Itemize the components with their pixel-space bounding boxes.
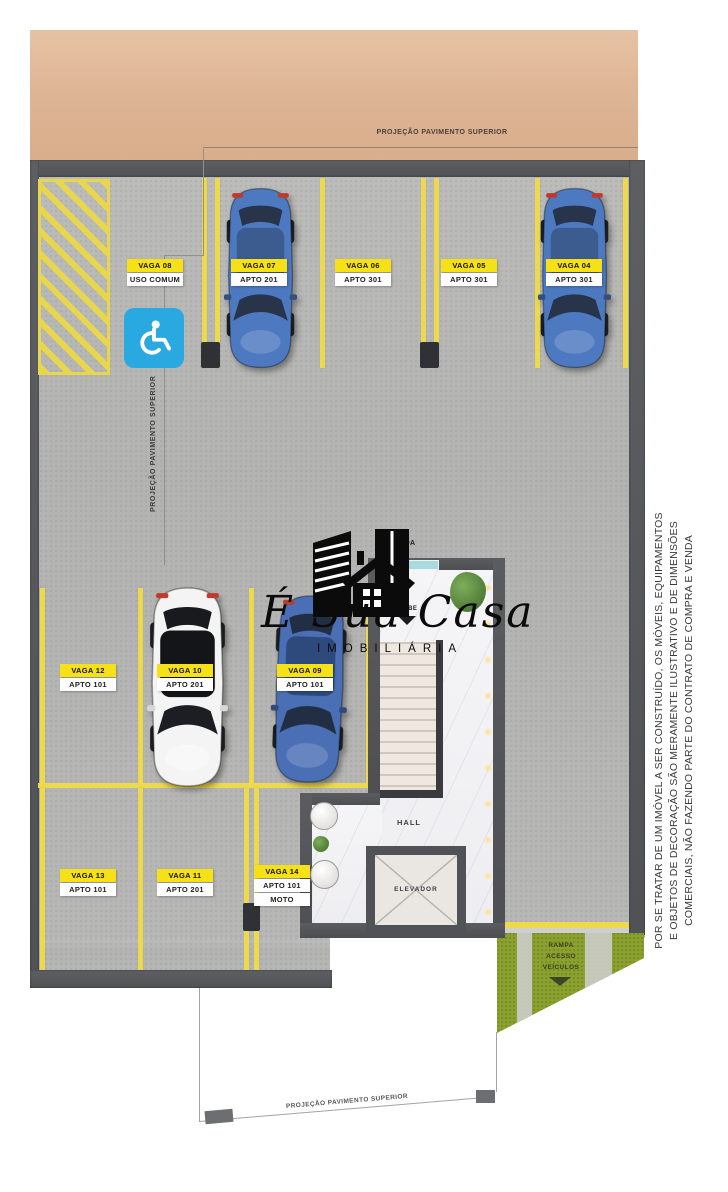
- stall-label-vaga-07: VAGA 07 APTO 201: [231, 259, 287, 286]
- unit-label: APTO 101: [254, 879, 310, 892]
- unit-label: APTO 101: [60, 883, 116, 896]
- stall-line: [40, 588, 45, 786]
- vaga-number: VAGA 10: [157, 664, 213, 677]
- projection-line: [199, 988, 200, 1122]
- disclaimer-line3: COMERCIAIS, NÃO FAZENDO PARTE DO CONTRAT…: [682, 483, 697, 978]
- upper-sidewalk-area: [30, 30, 638, 160]
- hall-wall-top: [300, 793, 380, 805]
- stall-label-vaga-04: VAGA 04 APTO 301: [546, 259, 602, 286]
- stall-label-vaga-09: VAGA 09 APTO 101: [277, 664, 333, 691]
- stall-line: [421, 178, 426, 368]
- vaga-number: VAGA 09: [277, 664, 333, 677]
- stall-label-vaga-12: VAGA 12 APTO 101: [60, 664, 116, 691]
- ramp-label-line3: VEÍCULOS: [519, 962, 603, 973]
- vehicle-ramp: RAMPA ACESSO VEÍCULOS: [497, 933, 644, 1033]
- disclaimer-line2: E OBJETOS DE DECORAÇÃO SÃO MERAMENTE ILU…: [667, 483, 682, 978]
- wheelchair-icon: [133, 317, 175, 359]
- stall-line: [40, 788, 45, 970]
- ramp-label-line1: RAMPA: [519, 940, 603, 951]
- moto-label: MOTO: [254, 893, 310, 906]
- ramp-arrow-icon: [549, 977, 571, 986]
- projection-line: [164, 255, 204, 256]
- stair-section-cut: [380, 790, 436, 798]
- stall-label-vaga-08: VAGA 08 USO COMUM: [127, 259, 183, 286]
- vaga-number: VAGA 07: [231, 259, 287, 272]
- ramp-label-line2: ACESSO: [519, 951, 603, 962]
- stall-label-vaga-14: VAGA 14 APTO 101 MOTO: [254, 865, 310, 906]
- stall-line: [138, 788, 143, 970]
- disclaimer-line1: POR SE TRATAR DE UM IMÓVEL A SER CONSTRU…: [652, 483, 667, 978]
- projection-line: [203, 149, 204, 255]
- round-table: [310, 802, 338, 830]
- wheel-stop: [420, 342, 439, 368]
- column-marker: [476, 1090, 495, 1103]
- top-projection-label: PROJEÇÃO PAVIMENTO SUPERIOR: [332, 129, 552, 136]
- wheel-stop: [201, 342, 220, 368]
- vaga-number: VAGA 12: [60, 664, 116, 677]
- stall-line: [138, 588, 143, 786]
- projection-boundary-line-top: [203, 147, 638, 148]
- unit-label: USO COMUM: [127, 273, 183, 286]
- wall-right: [629, 160, 645, 935]
- ramp-label: RAMPA ACESSO VEÍCULOS: [519, 940, 603, 973]
- unit-label: APTO 101: [277, 678, 333, 691]
- unit-label: APTO 201: [157, 678, 213, 691]
- watermark-script-text: É Sua Casa: [261, 587, 535, 638]
- hatched-no-parking-zone: [38, 179, 110, 375]
- watermark-logo: É Sua Casa IMOBILIÁRIA: [255, 515, 515, 665]
- stall-line: [249, 588, 254, 786]
- stall-line: [320, 178, 325, 368]
- stall-line: [244, 788, 249, 970]
- elevator-label: ELEVADOR: [375, 886, 457, 893]
- vaga-number: VAGA 05: [441, 259, 497, 272]
- garage-floor-lower: [30, 938, 330, 973]
- stall-label-vaga-06: VAGA 06 APTO 301: [335, 259, 391, 286]
- stall-label-vaga-10: VAGA 10 APTO 201: [157, 664, 213, 691]
- stall-line: [623, 178, 628, 368]
- vaga-number: VAGA 06: [335, 259, 391, 272]
- stall-label-vaga-05: VAGA 05 APTO 301: [441, 259, 497, 286]
- vaga-number: VAGA 11: [157, 869, 213, 882]
- unit-label: APTO 301: [441, 273, 497, 286]
- ramp-threshold: [503, 928, 629, 933]
- unit-label: APTO 201: [157, 883, 213, 896]
- left-projection-label: PROJEÇÃO PAVIMENTO SUPERIOR: [150, 376, 157, 512]
- hall-label: HALL: [384, 818, 434, 827]
- stall-line: [434, 178, 439, 368]
- stall-label-vaga-11: VAGA 11 APTO 201: [157, 869, 213, 896]
- round-table: [310, 860, 339, 889]
- stall-label-vaga-13: VAGA 13 APTO 101: [60, 869, 116, 896]
- wall-bottom: [30, 970, 332, 988]
- vaga-number: VAGA 14: [254, 865, 310, 878]
- wall-top: [30, 160, 645, 177]
- disclaimer-wrap: POR SE TRATAR DE UM IMÓVEL A SER CONSTRU…: [652, 978, 728, 1024]
- accessible-parking-icon: [124, 308, 184, 368]
- unit-label: APTO 101: [60, 678, 116, 691]
- vaga-number: VAGA 13: [60, 869, 116, 882]
- disclaimer-text: POR SE TRATAR DE UM IMÓVEL A SER CONSTRU…: [652, 483, 698, 978]
- unit-label: APTO 201: [231, 273, 287, 286]
- unit-label: APTO 301: [546, 273, 602, 286]
- column-marker: [204, 1109, 233, 1124]
- stall-line: [215, 178, 220, 368]
- vaga-number: VAGA 08: [127, 259, 183, 272]
- projection-line: [496, 1032, 497, 1092]
- vaga-number: VAGA 04: [546, 259, 602, 272]
- watermark-subtitle: IMOBILIÁRIA: [300, 643, 480, 655]
- wheel-stop: [243, 903, 260, 931]
- garage-floor-plan: PROJEÇÃO PAVIMENTO SUPERIOR PROJEÇÃO PAV…: [0, 0, 728, 1192]
- unit-label: APTO 301: [335, 273, 391, 286]
